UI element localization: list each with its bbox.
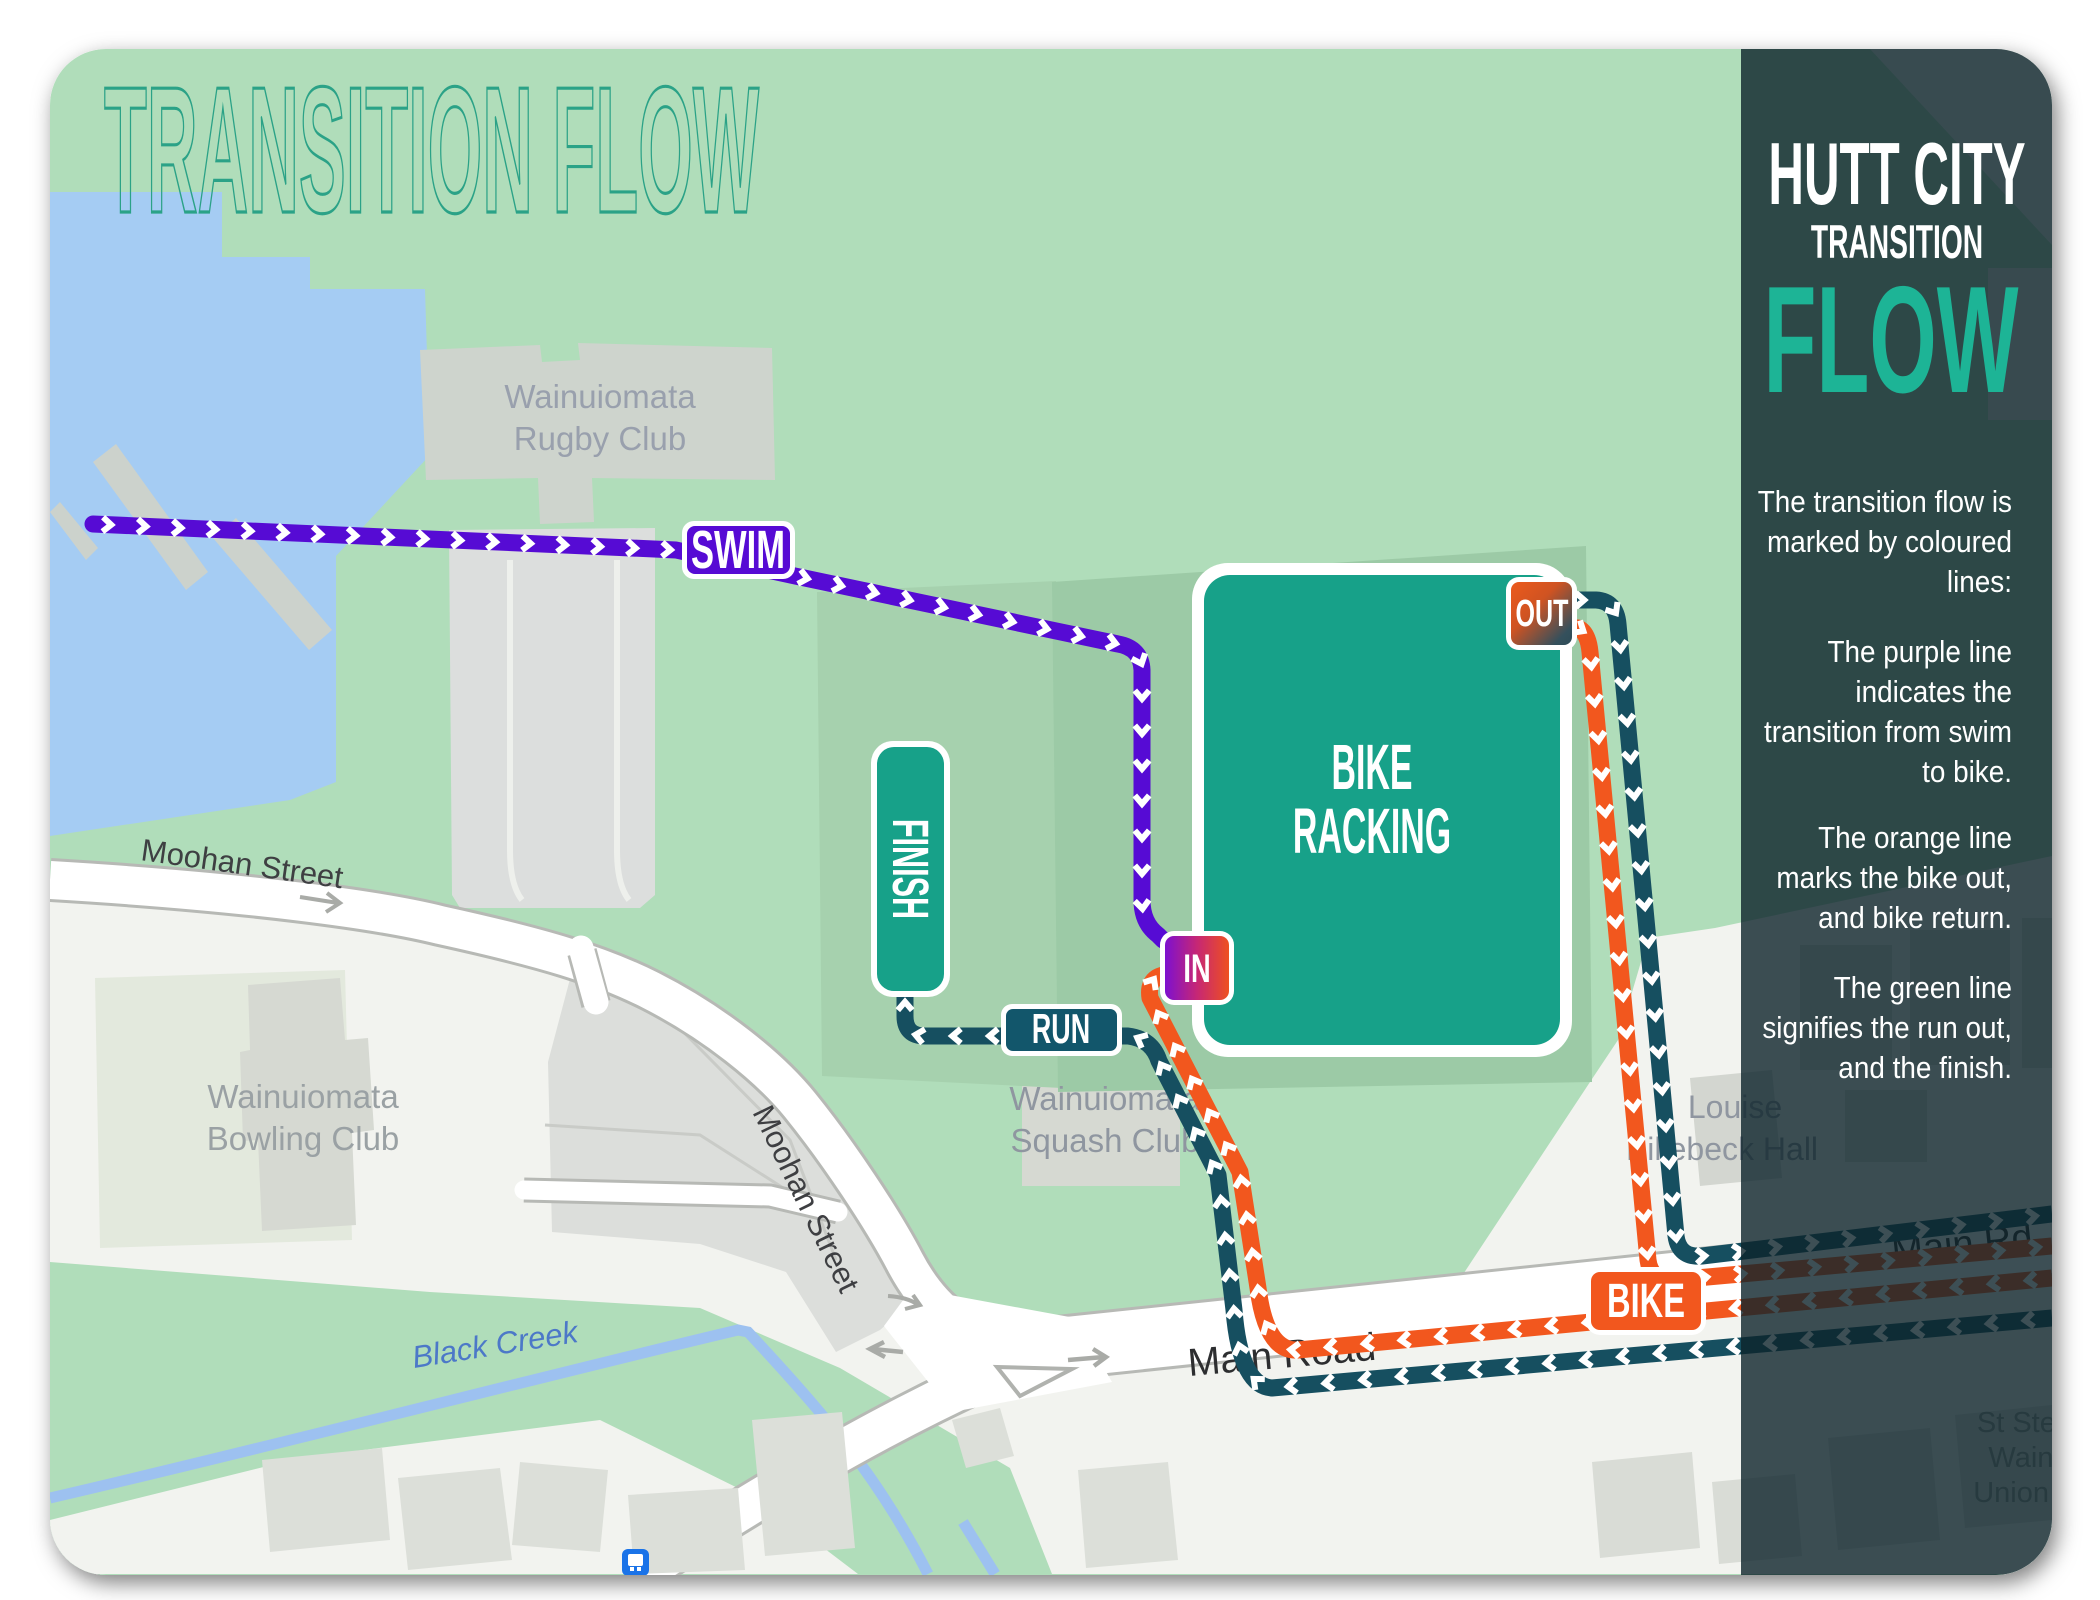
svg-text:HUTT CITY: HUTT CITY xyxy=(1768,125,2025,224)
svg-text:OUT: OUT xyxy=(1516,592,1569,634)
svg-text:lines:: lines: xyxy=(1947,565,2012,600)
svg-text:and bike return.: and bike return. xyxy=(1818,901,2012,936)
svg-text:marked by coloured: marked by coloured xyxy=(1767,525,2012,560)
svg-text:RACKING: RACKING xyxy=(1293,796,1451,867)
svg-text:BIKE: BIKE xyxy=(1331,732,1412,803)
svg-text:Wainuiomata: Wainuiomata xyxy=(207,1078,399,1115)
svg-text:transition from swim: transition from swim xyxy=(1764,715,2012,750)
svg-text:The orange line: The orange line xyxy=(1818,821,2012,856)
svg-text:signifies the run out,: signifies the run out, xyxy=(1762,1011,2012,1046)
svg-text:Rugby Club: Rugby Club xyxy=(514,420,686,457)
svg-text:RUN: RUN xyxy=(1032,1006,1090,1052)
svg-text:FINISH: FINISH xyxy=(882,819,939,919)
svg-text:The transition flow is: The transition flow is xyxy=(1758,485,2012,520)
svg-text:Wainuiomata: Wainuiomata xyxy=(504,378,696,415)
svg-text:and the finish.: and the finish. xyxy=(1838,1051,2012,1086)
svg-text:to bike.: to bike. xyxy=(1922,755,2012,790)
svg-text:TRANSITION FLOW: TRANSITION FLOW xyxy=(104,49,759,251)
svg-text:Squash Club: Squash Club xyxy=(1011,1122,1200,1159)
svg-text:IN: IN xyxy=(1183,947,1210,991)
svg-text:indicates the: indicates the xyxy=(1855,675,2012,710)
svg-text:The green line: The green line xyxy=(1834,971,2012,1006)
svg-text:The purple line: The purple line xyxy=(1827,635,2012,670)
svg-text:SWIM: SWIM xyxy=(691,519,785,580)
svg-text:marks the bike out,: marks the bike out, xyxy=(1776,861,2012,896)
svg-text:Bowling Club: Bowling Club xyxy=(207,1120,400,1157)
svg-text:BIKE: BIKE xyxy=(1607,1274,1685,1328)
svg-text:FLOW: FLOW xyxy=(1764,256,2019,426)
